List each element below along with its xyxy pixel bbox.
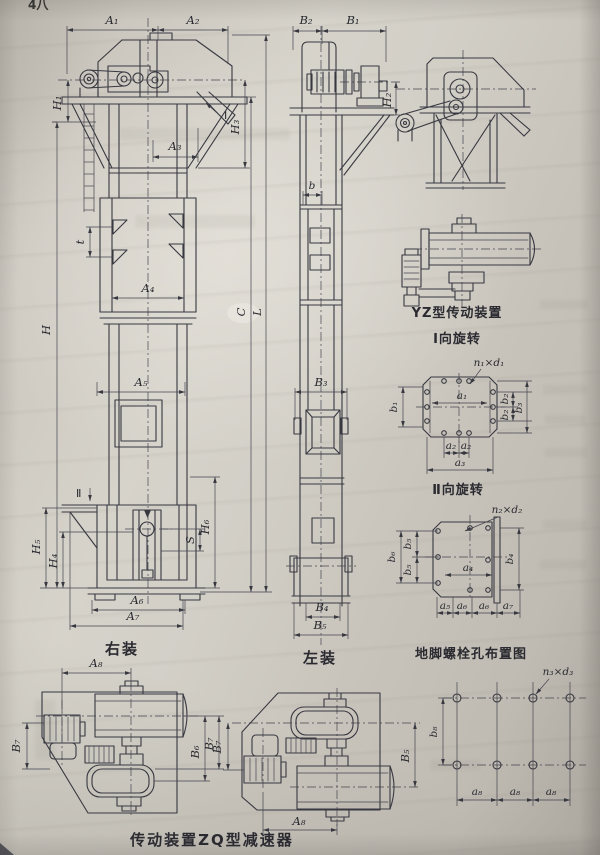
side-view-left-mounted: B₂ B₁ H₂ b B₃ B₄ B₅ bbox=[286, 13, 400, 667]
svg-text:B₄: B₄ bbox=[314, 600, 328, 614]
zq-drive-right-view: B₇ B₅ A₈ bbox=[210, 688, 420, 835]
page-corner-note: 4八 bbox=[28, 0, 49, 12]
svg-text:n₂×d₂: n₂×d₂ bbox=[492, 504, 523, 516]
svg-text:H₂: H₂ bbox=[380, 92, 394, 108]
section-ii-label: Ⅱ bbox=[76, 487, 81, 500]
bucket-elevator-drawing: 4八 bbox=[0, 0, 600, 855]
svg-text:B₂: B₂ bbox=[298, 13, 312, 27]
svg-text:a₂: a₂ bbox=[446, 440, 456, 452]
svg-text:a₄: a₄ bbox=[463, 562, 473, 574]
svg-text:a₇: a₇ bbox=[503, 600, 514, 612]
svg-text:L: L bbox=[250, 308, 264, 317]
service-ladder bbox=[84, 104, 94, 212]
yz-drive-caption: YZ型传动装置 bbox=[411, 305, 503, 321]
svg-text:A₁: A₁ bbox=[105, 13, 119, 27]
svg-text:B₇: B₇ bbox=[9, 739, 23, 753]
front-view-right-mounted: Ⅰ bbox=[29, 13, 272, 658]
takeup-arrow bbox=[144, 510, 151, 518]
svg-text:A₃: A₃ bbox=[168, 139, 182, 153]
rotation-ii-bolts bbox=[436, 526, 491, 593]
svg-text:b₃: b₃ bbox=[513, 403, 525, 414]
zq-right-dimensions: B₇ B₅ A₈ bbox=[210, 723, 415, 835]
head-end-view bbox=[396, 50, 536, 190]
svg-text:b: b bbox=[309, 180, 316, 192]
svg-text:H₅: H₅ bbox=[29, 539, 43, 555]
svg-text:b₂: b₂ bbox=[499, 394, 511, 405]
yz-drive-view: YZ型传动装置 bbox=[402, 214, 542, 321]
svg-text:a₈: a₈ bbox=[510, 786, 521, 798]
svg-text:b₅: b₅ bbox=[402, 564, 414, 576]
svg-text:A₂: A₂ bbox=[186, 13, 200, 27]
svg-text:a₈: a₈ bbox=[546, 786, 557, 798]
svg-text:a₆: a₆ bbox=[479, 600, 490, 612]
svg-text:A₈: A₈ bbox=[292, 814, 306, 828]
anchor-plan-dimensions: n₃×d₃ b₈ a₈ a₈ a₈ bbox=[428, 666, 573, 800]
svg-text:b₆: b₆ bbox=[386, 551, 398, 563]
svg-text:a₁: a₁ bbox=[457, 390, 467, 402]
svg-text:t: t bbox=[73, 239, 87, 244]
svg-text:a₃: a₃ bbox=[455, 457, 465, 469]
svg-text:a₈: a₈ bbox=[472, 786, 483, 798]
svg-text:b₅: b₅ bbox=[402, 538, 414, 550]
svg-text:B₅: B₅ bbox=[312, 618, 326, 632]
svg-text:n₁×d₁: n₁×d₁ bbox=[474, 357, 505, 369]
svg-text:A₈: A₈ bbox=[89, 656, 103, 670]
head-drive-unit bbox=[80, 66, 168, 97]
anchor-bolt-plan: 地脚螺栓孔布置图 n₃×d₃ b₈ bbox=[415, 646, 586, 806]
svg-text:H: H bbox=[39, 324, 53, 336]
svg-text:H₄: H₄ bbox=[46, 553, 60, 569]
boot-section bbox=[62, 505, 205, 600]
svg-text:a₆: a₆ bbox=[457, 600, 468, 612]
corner-shadow bbox=[0, 843, 14, 855]
side-view-caption: 左装 bbox=[302, 649, 337, 667]
svg-text:S: S bbox=[183, 536, 197, 544]
rotation-i-caption: Ⅰ向旋转 bbox=[433, 331, 481, 347]
scanned-paper-page: 4八 bbox=[0, 0, 600, 855]
svg-text:b₁: b₁ bbox=[388, 402, 400, 413]
rotation-ii-dimensions: n₂×d₂ b₆ b₅ b₅ b₄ a₄ bbox=[386, 504, 524, 618]
svg-text:b₂: b₂ bbox=[499, 410, 511, 421]
svg-text:A₇: A₇ bbox=[126, 609, 140, 623]
svg-text:A₄: A₄ bbox=[141, 281, 155, 295]
svg-text:B₅: B₅ bbox=[398, 749, 412, 763]
rotation-ii-caption: Ⅱ向旋转 bbox=[432, 482, 484, 498]
svg-text:H₁: H₁ bbox=[50, 96, 64, 112]
anchor-holes bbox=[453, 694, 574, 769]
svg-text:a₂: a₂ bbox=[461, 440, 471, 452]
svg-text:B₆: B₆ bbox=[188, 745, 202, 759]
svg-text:B₃: B₃ bbox=[313, 375, 327, 389]
front-view-caption: 右装 bbox=[105, 640, 139, 658]
svg-text:n₃×d₃: n₃×d₃ bbox=[543, 666, 574, 678]
rotation-i-dimensions: n₁×d₁ b₁ a₁ b₂ b₂ b₃ bbox=[388, 357, 532, 474]
anchor-plan-caption: 地脚螺栓孔布置图 bbox=[415, 646, 527, 662]
svg-text:A₅: A₅ bbox=[134, 375, 148, 389]
rotation-i-view: Ⅰ向旋转 n₁×d₁ b₁ a₁ bbox=[388, 331, 532, 474]
svg-text:C: C bbox=[234, 307, 248, 316]
svg-text:B₁: B₁ bbox=[345, 13, 359, 27]
svg-text:A₆: A₆ bbox=[130, 593, 144, 607]
svg-text:B₇: B₇ bbox=[210, 740, 224, 754]
side-view-dimensions: B₂ B₁ H₂ b B₃ B₄ B₅ bbox=[293, 13, 400, 639]
svg-text:a₅: a₅ bbox=[440, 600, 451, 612]
head-section bbox=[62, 33, 247, 104]
rotation-ii-view: Ⅱ向旋转 n₂×d₂ b₆ bbox=[386, 482, 524, 618]
svg-text:H₆: H₆ bbox=[198, 519, 212, 535]
side-boot bbox=[290, 556, 352, 603]
svg-text:b₈: b₈ bbox=[428, 726, 440, 738]
zq-drive-caption: 传动装置ZQ型减速器 bbox=[129, 831, 294, 849]
svg-text:b₄: b₄ bbox=[504, 554, 516, 565]
svg-text:H₃: H₃ bbox=[228, 119, 242, 135]
